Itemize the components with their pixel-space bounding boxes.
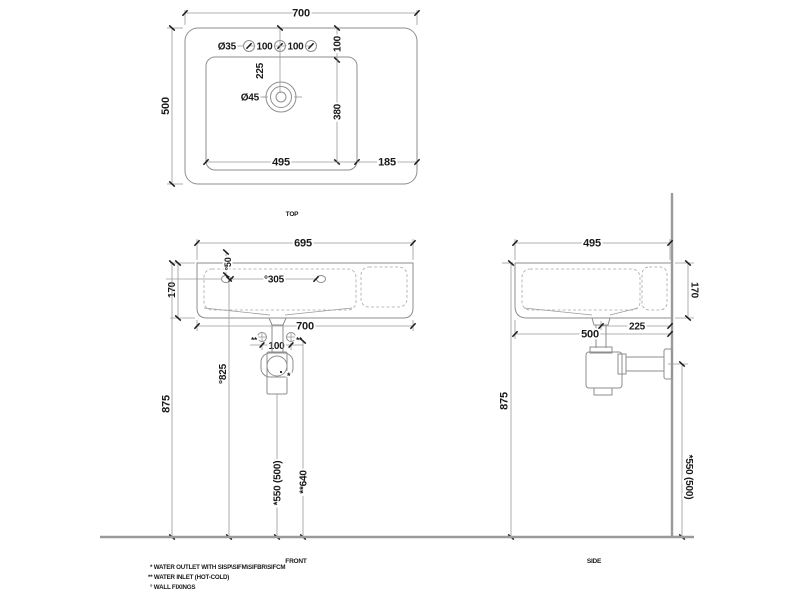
basin-side-hidden-ledge: [642, 267, 667, 310]
top-view-label: TOP: [286, 211, 300, 218]
dim-rim-height-front: 875: [161, 263, 173, 537]
front-view-label: FRONT: [285, 558, 307, 565]
note-water-inlet: ** WATER INLET (HOT-COLD): [148, 574, 229, 581]
dim-basin-depth: 380: [333, 60, 344, 162]
dim-tap-hole-dia: Ø35: [218, 42, 243, 53]
side-view: 495 170 225 500 875: [499, 193, 700, 565]
dim-ledge-width: 185: [357, 157, 417, 169]
dim-fixing-offset: °50: [223, 252, 233, 275]
dim-text-640: **640: [299, 470, 310, 494]
dim-drain-dia: Ø45: [241, 93, 266, 104]
basin-front-slope-lines: [204, 308, 352, 315]
dim-text-500-side: 500: [581, 329, 599, 341]
dim-tap-edge-offset: 100: [333, 28, 344, 60]
dim-text-170-front: 170: [167, 281, 178, 298]
dim-text-100-vert: 100: [333, 35, 344, 52]
dim-text-495: 495: [272, 157, 290, 169]
dim-rim-width: 695: [197, 238, 413, 261]
dim-text-185: 185: [378, 157, 396, 169]
dim-outlet-wall-offset: 225: [601, 321, 670, 333]
inlet-mark-right: **: [296, 336, 303, 345]
note-wall-fixings: ° WALL FIXINGS: [150, 584, 195, 591]
technical-drawing-page: 700 500 Ø35 100 100 100 380: [0, 0, 800, 600]
dim-top-width: 700: [185, 8, 417, 26]
dim-side-depth: 495: [515, 238, 670, 261]
notes-block: * WATER OUTLET WITH SISP\SIFM\SIFBR\SIFC…: [148, 564, 285, 591]
dim-text-700-front: 700: [296, 321, 314, 333]
basin-side-hidden-bowl: [522, 269, 640, 310]
dim-text-100-right: 100: [287, 42, 304, 53]
dim-text-875-side: 875: [499, 392, 511, 410]
dim-text-500: 500: [160, 97, 172, 115]
dim-text-875-front: 875: [161, 395, 173, 413]
dim-text-305: °305: [264, 275, 285, 286]
dim-text-dia35: Ø35: [218, 42, 237, 53]
dim-text-100-left: 100: [256, 42, 273, 53]
drain-flange-front: [269, 318, 286, 325]
side-view-label: SIDE: [587, 558, 602, 565]
dim-text-380: 380: [333, 103, 344, 120]
basin-front-hidden-ledge: [361, 267, 407, 307]
dim-text-170-side: 170: [689, 282, 700, 299]
inlet-mark-left: **: [251, 336, 258, 345]
dim-front-height: 170: [167, 263, 195, 318]
dim-text-50: °50: [223, 257, 233, 270]
dim-outlet-height-front: *550 (500): [273, 394, 284, 537]
note-water-outlet: * WATER OUTLET WITH SISP\SIFM\SIFBR\SIFC…: [150, 564, 285, 571]
basin-side-slope-lines: [524, 308, 638, 315]
drain-hole: [262, 82, 302, 112]
dim-text-225-side: 225: [629, 322, 646, 333]
dim-text-dia45: Ø45: [241, 93, 260, 104]
dim-text-700: 700: [292, 8, 310, 20]
dim-side-height: 170: [675, 263, 700, 318]
dim-fixing-spacing: °305: [166, 275, 316, 286]
front-view: °50 °305 695 700 170: [161, 238, 414, 566]
dim-text-495-side: 495: [583, 238, 601, 250]
top-view: 700 500 Ø35 100 100 100 380: [160, 8, 417, 219]
dim-top-depth: 500: [160, 28, 183, 184]
dim-basin-width: 495: [206, 157, 357, 169]
dim-text-550-side: *550 (500): [683, 455, 694, 500]
wall-fixing-hole-right: [317, 276, 326, 283]
washbasin-dimension-drawing: 700 500 Ø35 100 100 100 380: [0, 0, 800, 600]
dim-inlet-height: **640: [299, 341, 310, 537]
dim-text-225: 225: [255, 62, 266, 79]
outlet-mark: *: [287, 371, 291, 381]
dim-overall-depth: 500: [515, 320, 670, 341]
dim-text-825: °825: [218, 363, 229, 384]
dim-text-695: 695: [294, 238, 312, 250]
dim-text-550-front: *550 (500): [273, 461, 284, 506]
dim-rim-height-side: 875: [499, 263, 514, 537]
